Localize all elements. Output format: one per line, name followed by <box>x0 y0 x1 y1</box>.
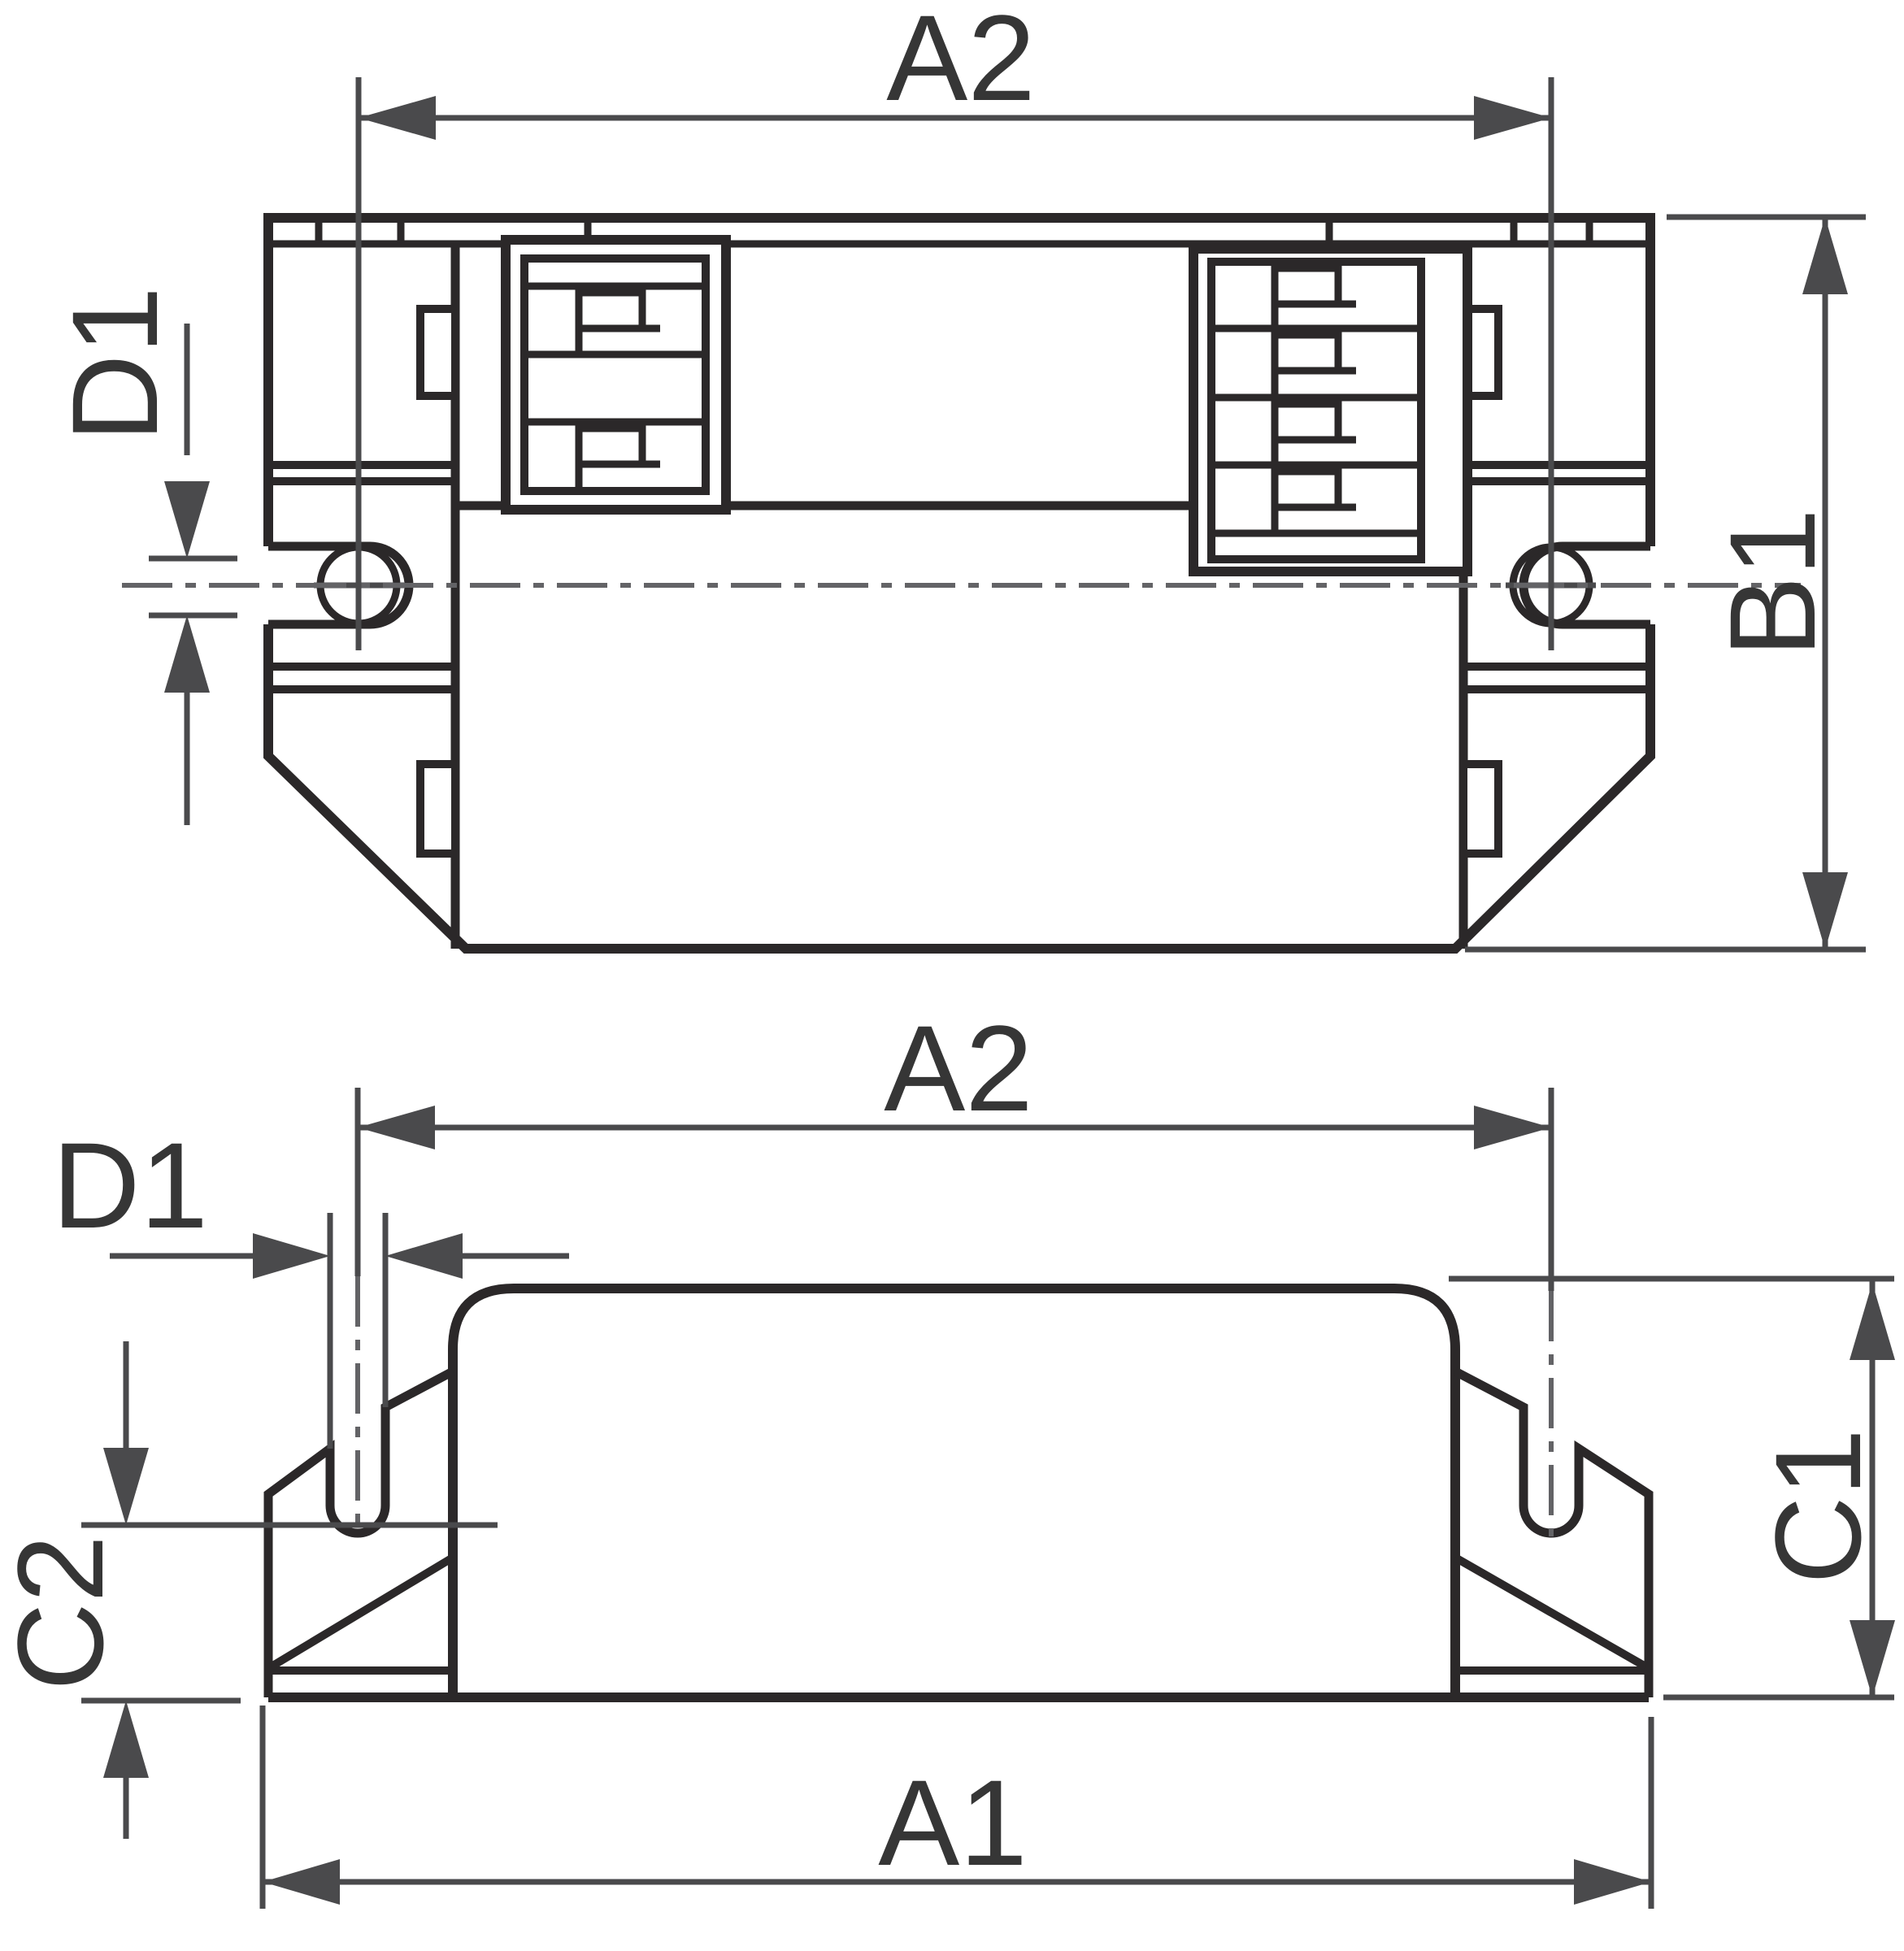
dimension-label-d1: D1 <box>52 1117 208 1254</box>
drawing-page: A2 D1 B1 <box>0 0 1904 1951</box>
top-view: A2 D1 B1 <box>46 0 1866 949</box>
dimension-label-a2: A2 <box>884 1000 1032 1136</box>
arrowhead-down <box>1850 1620 1895 1697</box>
arrowhead-right <box>1574 1859 1651 1905</box>
arrowhead-up <box>164 615 210 693</box>
arrowhead-right <box>1474 1106 1551 1149</box>
dimension-label-a2: A2 <box>886 0 1035 126</box>
arrowhead-up <box>1802 217 1848 294</box>
arrowhead-left <box>359 96 436 140</box>
arrowhead-right <box>253 1233 330 1279</box>
dimension-label-c1: C1 <box>1750 1428 1886 1584</box>
side-view: A2 D1 C2 C1 <box>0 1000 1895 1909</box>
foot-gusset <box>272 1558 453 1666</box>
side-body-outline <box>268 1288 1649 1697</box>
dimension-d1-top: D1 <box>46 286 237 825</box>
dimension-label-c2: C2 <box>0 1535 128 1691</box>
terminal-block-4pole <box>1193 249 1467 571</box>
arrowhead-up <box>1850 1283 1895 1360</box>
slot-centerlines <box>358 1276 1551 1536</box>
right-lower-tab <box>1463 764 1498 854</box>
dimension-d1-side: D1 <box>52 1117 569 1449</box>
foot-gusset <box>1455 1558 1645 1666</box>
dimension-label-d1: D1 <box>46 286 183 442</box>
dimension-label-b1: B1 <box>1704 508 1841 657</box>
dimension-a2-side: A2 <box>358 1000 1551 1291</box>
dimension-a1: A1 <box>263 1705 1651 1909</box>
dimension-label-a1: A1 <box>878 1754 1027 1891</box>
arrowhead-left <box>263 1859 340 1905</box>
arrowhead-down <box>164 481 210 558</box>
arrowhead-left <box>385 1233 463 1279</box>
left-foot <box>268 1371 453 1697</box>
dimension-c2: C2 <box>0 1341 498 1839</box>
arrowhead-down <box>1802 872 1848 949</box>
arrowhead-up <box>103 1701 149 1778</box>
arrowhead-right <box>1474 96 1551 140</box>
dimension-drawing: A2 D1 B1 <box>0 0 1904 1951</box>
left-lower-tab <box>420 764 455 854</box>
arrowhead-left <box>358 1106 435 1149</box>
left-upper-tab <box>420 309 455 396</box>
dimension-c1: C1 <box>1449 1279 1895 1697</box>
arrowhead-down <box>103 1448 149 1525</box>
terminal-block-2pole <box>506 240 726 510</box>
